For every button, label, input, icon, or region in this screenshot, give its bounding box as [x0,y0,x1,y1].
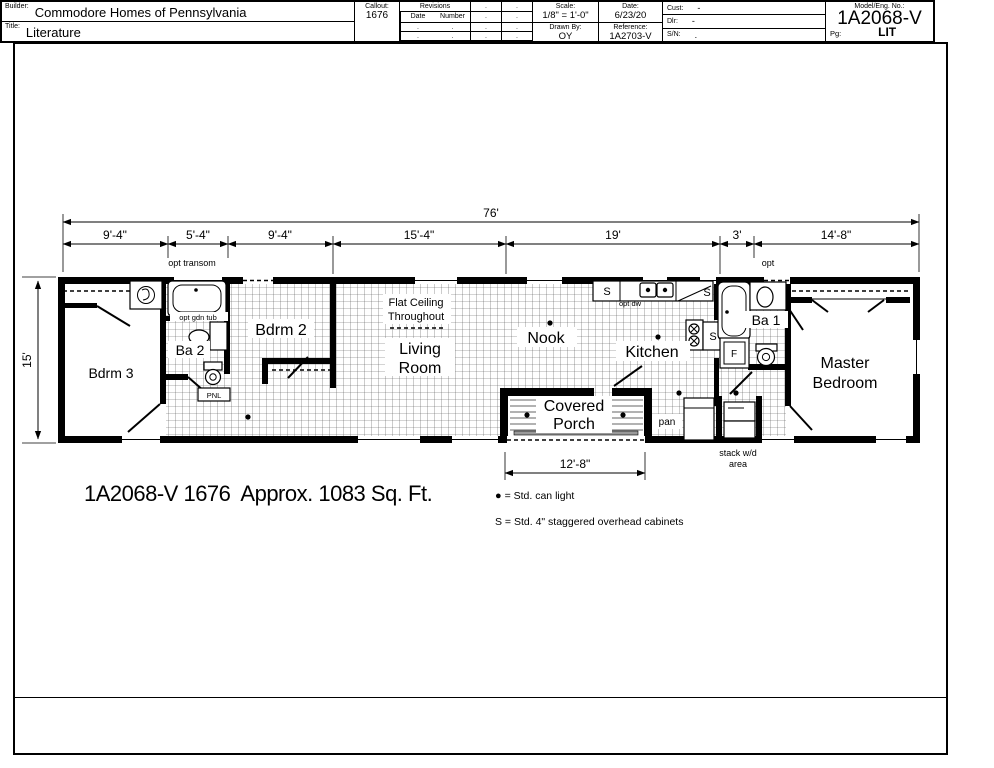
window [415,277,457,284]
legend-can-light-text: = Std. can light [505,490,575,502]
legend-can-light: ● = Std. can light [495,490,683,502]
room-label-bdrm3: Bdrm 3 [88,365,133,381]
room-label-porch-2: Porch [553,416,595,433]
dim-height: 15' [20,352,34,368]
room-label-ba1: Ba 1 [752,312,781,328]
note-flat-ceiling-2: Throughout [388,311,444,323]
room-label-ba2: Ba 2 [176,342,205,358]
dim-seg1: 9'-4" [103,228,127,242]
furnace-f-label: F [731,349,737,360]
dim-seg5: 19' [605,228,621,242]
garden-tub-icon [168,281,226,316]
dim-seg6: 3' [733,228,742,242]
dim-seg7: 14'-8" [821,228,852,242]
dim-seg4: 15'-4" [404,228,435,242]
can-light-icon: ● [495,490,502,502]
note-pan: pan [659,417,676,428]
note-stack-wd-1: stack w/d [719,448,757,458]
dim-seg3: 9'-4" [268,228,292,242]
floorplan-drawing: Bdrm 3 Ba 2 Bdrm 2 Flat Ceiling Througho… [0,0,994,710]
note-pnl: PNL [207,391,222,400]
window [762,436,794,443]
drawing-sheet: { "drawing": { "plan_title": "1A2068-V 1… [0,0,994,768]
note-opt: opt [762,258,775,268]
opt-transom-window [243,277,273,284]
window [452,436,498,443]
window [876,436,906,443]
note-stack-wd-2: area [729,459,747,469]
window [527,277,562,284]
legend-cabinets-text: S = Std. 4" staggered overhead cabinets [495,516,683,528]
room-label-living-2: Room [399,360,442,377]
cabinet-s-label: S [603,286,610,298]
room-label-bdrm2: Bdrm 2 [255,322,307,339]
ba2-toilet-icon [204,362,222,385]
cabinet-s-label: S [703,287,710,299]
window [358,436,420,443]
room-label-porch-1: Covered [544,398,604,415]
note-opt-dw: opt dw [619,299,642,308]
kitchen-sink-icon [640,283,673,297]
ba1-sink-icon [750,282,786,310]
shower-icon [130,281,162,309]
room-label-master-2: Bedroom [813,375,878,392]
note-flat-ceiling-1: Flat Ceiling [388,297,443,309]
plan-caption: 1A2068-V 1676 Approx. 1083 Sq. Ft. [84,481,432,507]
dim-seg2: 5'-4" [186,228,210,242]
note-opt-gdn-tub: opt gdn tub [179,313,217,322]
cabinet-s-label: S [709,331,716,343]
room-label-master-1: Master [821,355,871,372]
room-label-kitchen: Kitchen [625,344,678,361]
dim-porch: 12'-8" [560,457,591,471]
pantry-cabinet [684,398,714,440]
legend: ● = Std. can light S = Std. 4" staggered… [495,490,683,528]
window [122,436,160,443]
window [913,340,920,374]
note-opt-transom: opt transom [168,258,216,268]
room-label-living-1: Living [399,341,441,358]
dim-overall: 76' [483,206,499,220]
stack-washer-dryer-icon [724,402,755,438]
room-label-nook: Nook [527,330,565,347]
